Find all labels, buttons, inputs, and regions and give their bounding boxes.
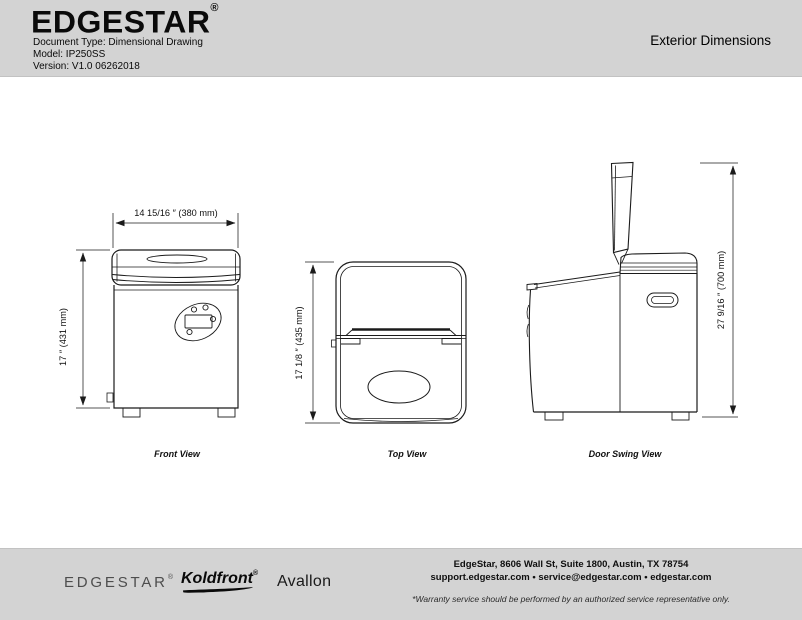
top-height-dimension [305,262,340,423]
header-band: EDGESTAR® Document Type: Dimensional Dra… [0,0,802,77]
top-view-label: Top View [388,449,428,459]
door-swing-height-dimension-label: 27 9/16 ″ (700 mm) [716,251,726,329]
brand-avallon-text: Avallon [277,573,331,590]
brand-edgestar-reg: ® [168,574,173,581]
front-height-dimension-label: 17 ″ (431 mm) [58,308,68,366]
version-line: Version: V1.0 06262018 [33,61,203,73]
door-swing-view-label: Door Swing View [589,449,663,459]
footer-contacts: support.edgestar.com • service@edgestar.… [400,572,742,583]
technical-drawing-canvas: 14 15/16 ″ (380 mm) 17 ″ (431 mm) [0,77,802,548]
dimensional-drawing-page: EDGESTAR® Document Type: Dimensional Dra… [0,0,802,620]
page-title: Exterior Dimensions [650,33,771,48]
front-right-foot [218,408,235,417]
front-left-foot [123,408,140,417]
footer-band: EDGESTAR® Koldfront® Avallon EdgeStar, 8… [0,548,802,620]
edgestar-logo-text: EDGESTAR [31,4,210,39]
side-left-foot [545,412,563,420]
top-height-dimension-label: 17 1/8 ″ (435 mm) [294,306,304,379]
brand-edgestar-text: EDGESTAR [64,574,168,591]
front-height-dimension [76,250,110,408]
footer-address: EdgeStar, 8606 Wall St, Suite 1800, Aust… [400,559,742,570]
lid-handle-recess [147,255,207,263]
brand-logo-edgestar: EDGESTAR® [64,574,173,591]
document-type-line: Document Type: Dimensional Drawing [33,37,203,49]
top-handle-recess [368,371,430,403]
door-swing-view-drawing: 27 9/16 ″ (700 mm) [527,163,738,460]
registered-trademark-symbol: ® [210,2,219,14]
door-swing-unit [527,163,697,421]
brand-logo-avallon: Avallon [277,573,331,591]
brand-koldfront-reg: ® [253,570,258,577]
side-tab [332,340,337,347]
control-display [185,315,212,328]
front-view-label: Front View [154,449,201,459]
document-info: Document Type: Dimensional Drawing Model… [33,37,203,72]
top-view-drawing: 17 1/8 ″ (435 mm) Top View [294,262,466,459]
side-right-foot [672,412,689,420]
open-lid [612,163,634,265]
warranty-note: *Warranty service should be performed by… [400,594,742,604]
brand-koldfront-text: Koldfront [181,570,253,587]
model-line: Model: IP250SS [33,49,203,61]
drain-plug [107,393,113,402]
front-view-drawing: 14 15/16 ″ (380 mm) 17 ″ (431 mm) [58,208,240,459]
front-width-dimension-label: 14 15/16 ″ (380 mm) [134,208,217,218]
edgestar-logo: EDGESTAR® [31,4,219,40]
control-panel [169,296,227,347]
koldfront-underline-swoosh [183,586,253,593]
front-view-unit [107,250,240,417]
front-width-dimension [113,213,238,248]
top-view-unit [332,262,467,423]
